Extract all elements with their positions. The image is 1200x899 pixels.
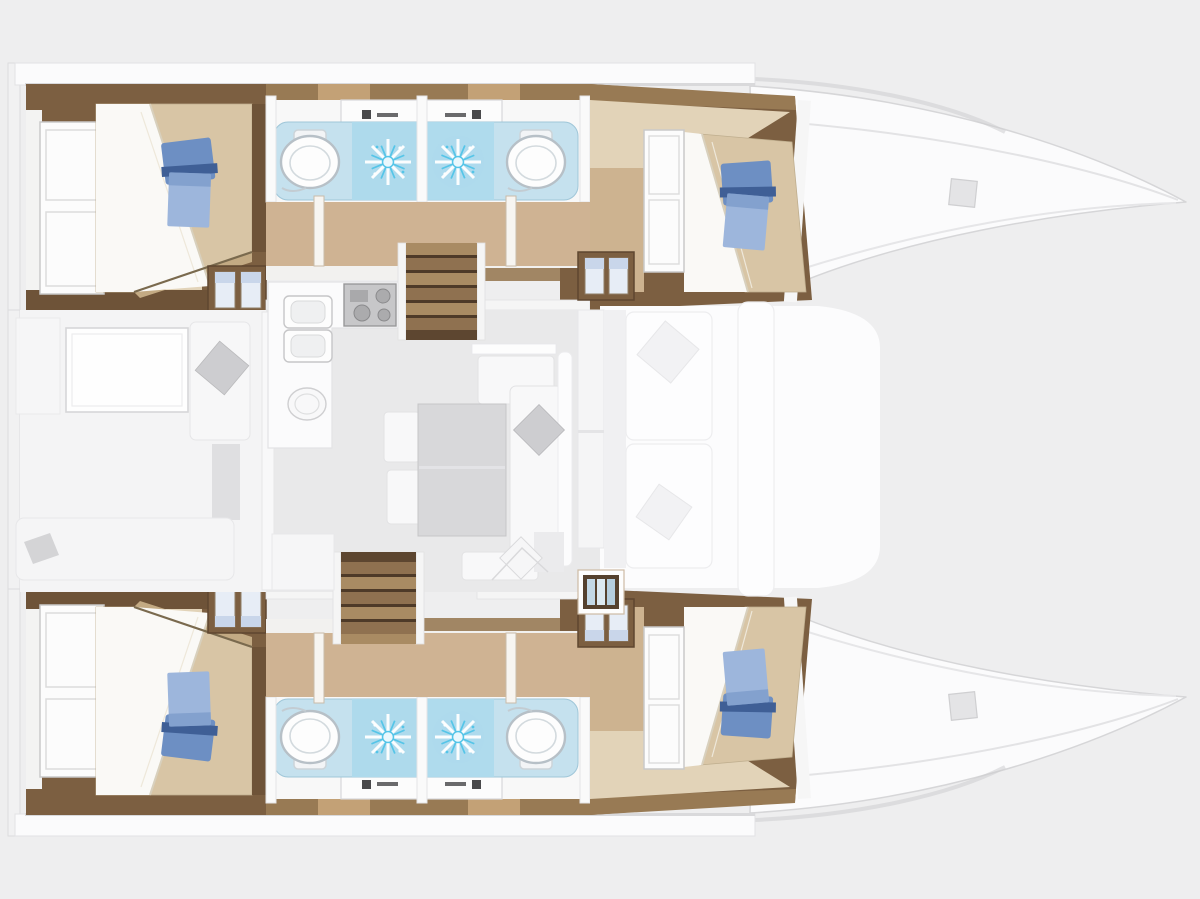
bathrooms	[266, 84, 590, 206]
stairs-bottom-hull	[333, 552, 424, 644]
headboard	[252, 104, 266, 252]
floor-plan-canvas	[0, 0, 1200, 899]
seat-pad	[534, 532, 564, 572]
towel-set-icon	[161, 137, 218, 227]
cockpit-table	[66, 328, 188, 412]
deck-band	[15, 63, 755, 85]
shower-spray-icon	[432, 136, 484, 188]
deck-hatch-icon	[949, 179, 978, 208]
storage-locker	[578, 252, 634, 300]
round-sink	[288, 388, 326, 420]
dining-table	[418, 404, 506, 536]
wardrobe	[40, 122, 104, 294]
double-berth	[684, 132, 806, 292]
stove-top	[344, 284, 396, 326]
wardrobe	[644, 130, 684, 272]
cabin-aft	[26, 84, 266, 314]
stairs-top-hull	[398, 243, 485, 340]
transom-strip	[8, 63, 20, 310]
door-frame	[506, 196, 516, 266]
door-frame	[314, 196, 324, 266]
bottle-cabinet	[578, 570, 624, 614]
seat-pad	[212, 444, 240, 520]
storage-locker	[208, 266, 266, 314]
forward-sliding-door	[578, 310, 604, 548]
cabin-forward	[578, 84, 812, 310]
chair	[384, 412, 420, 462]
shower-spray-icon	[362, 136, 414, 188]
forward-beam-seat	[738, 302, 774, 596]
partition-wall	[417, 96, 427, 202]
forward-cockpit	[578, 302, 774, 596]
nav-cabinet	[272, 534, 334, 590]
floor-plan-stage	[0, 0, 1200, 899]
